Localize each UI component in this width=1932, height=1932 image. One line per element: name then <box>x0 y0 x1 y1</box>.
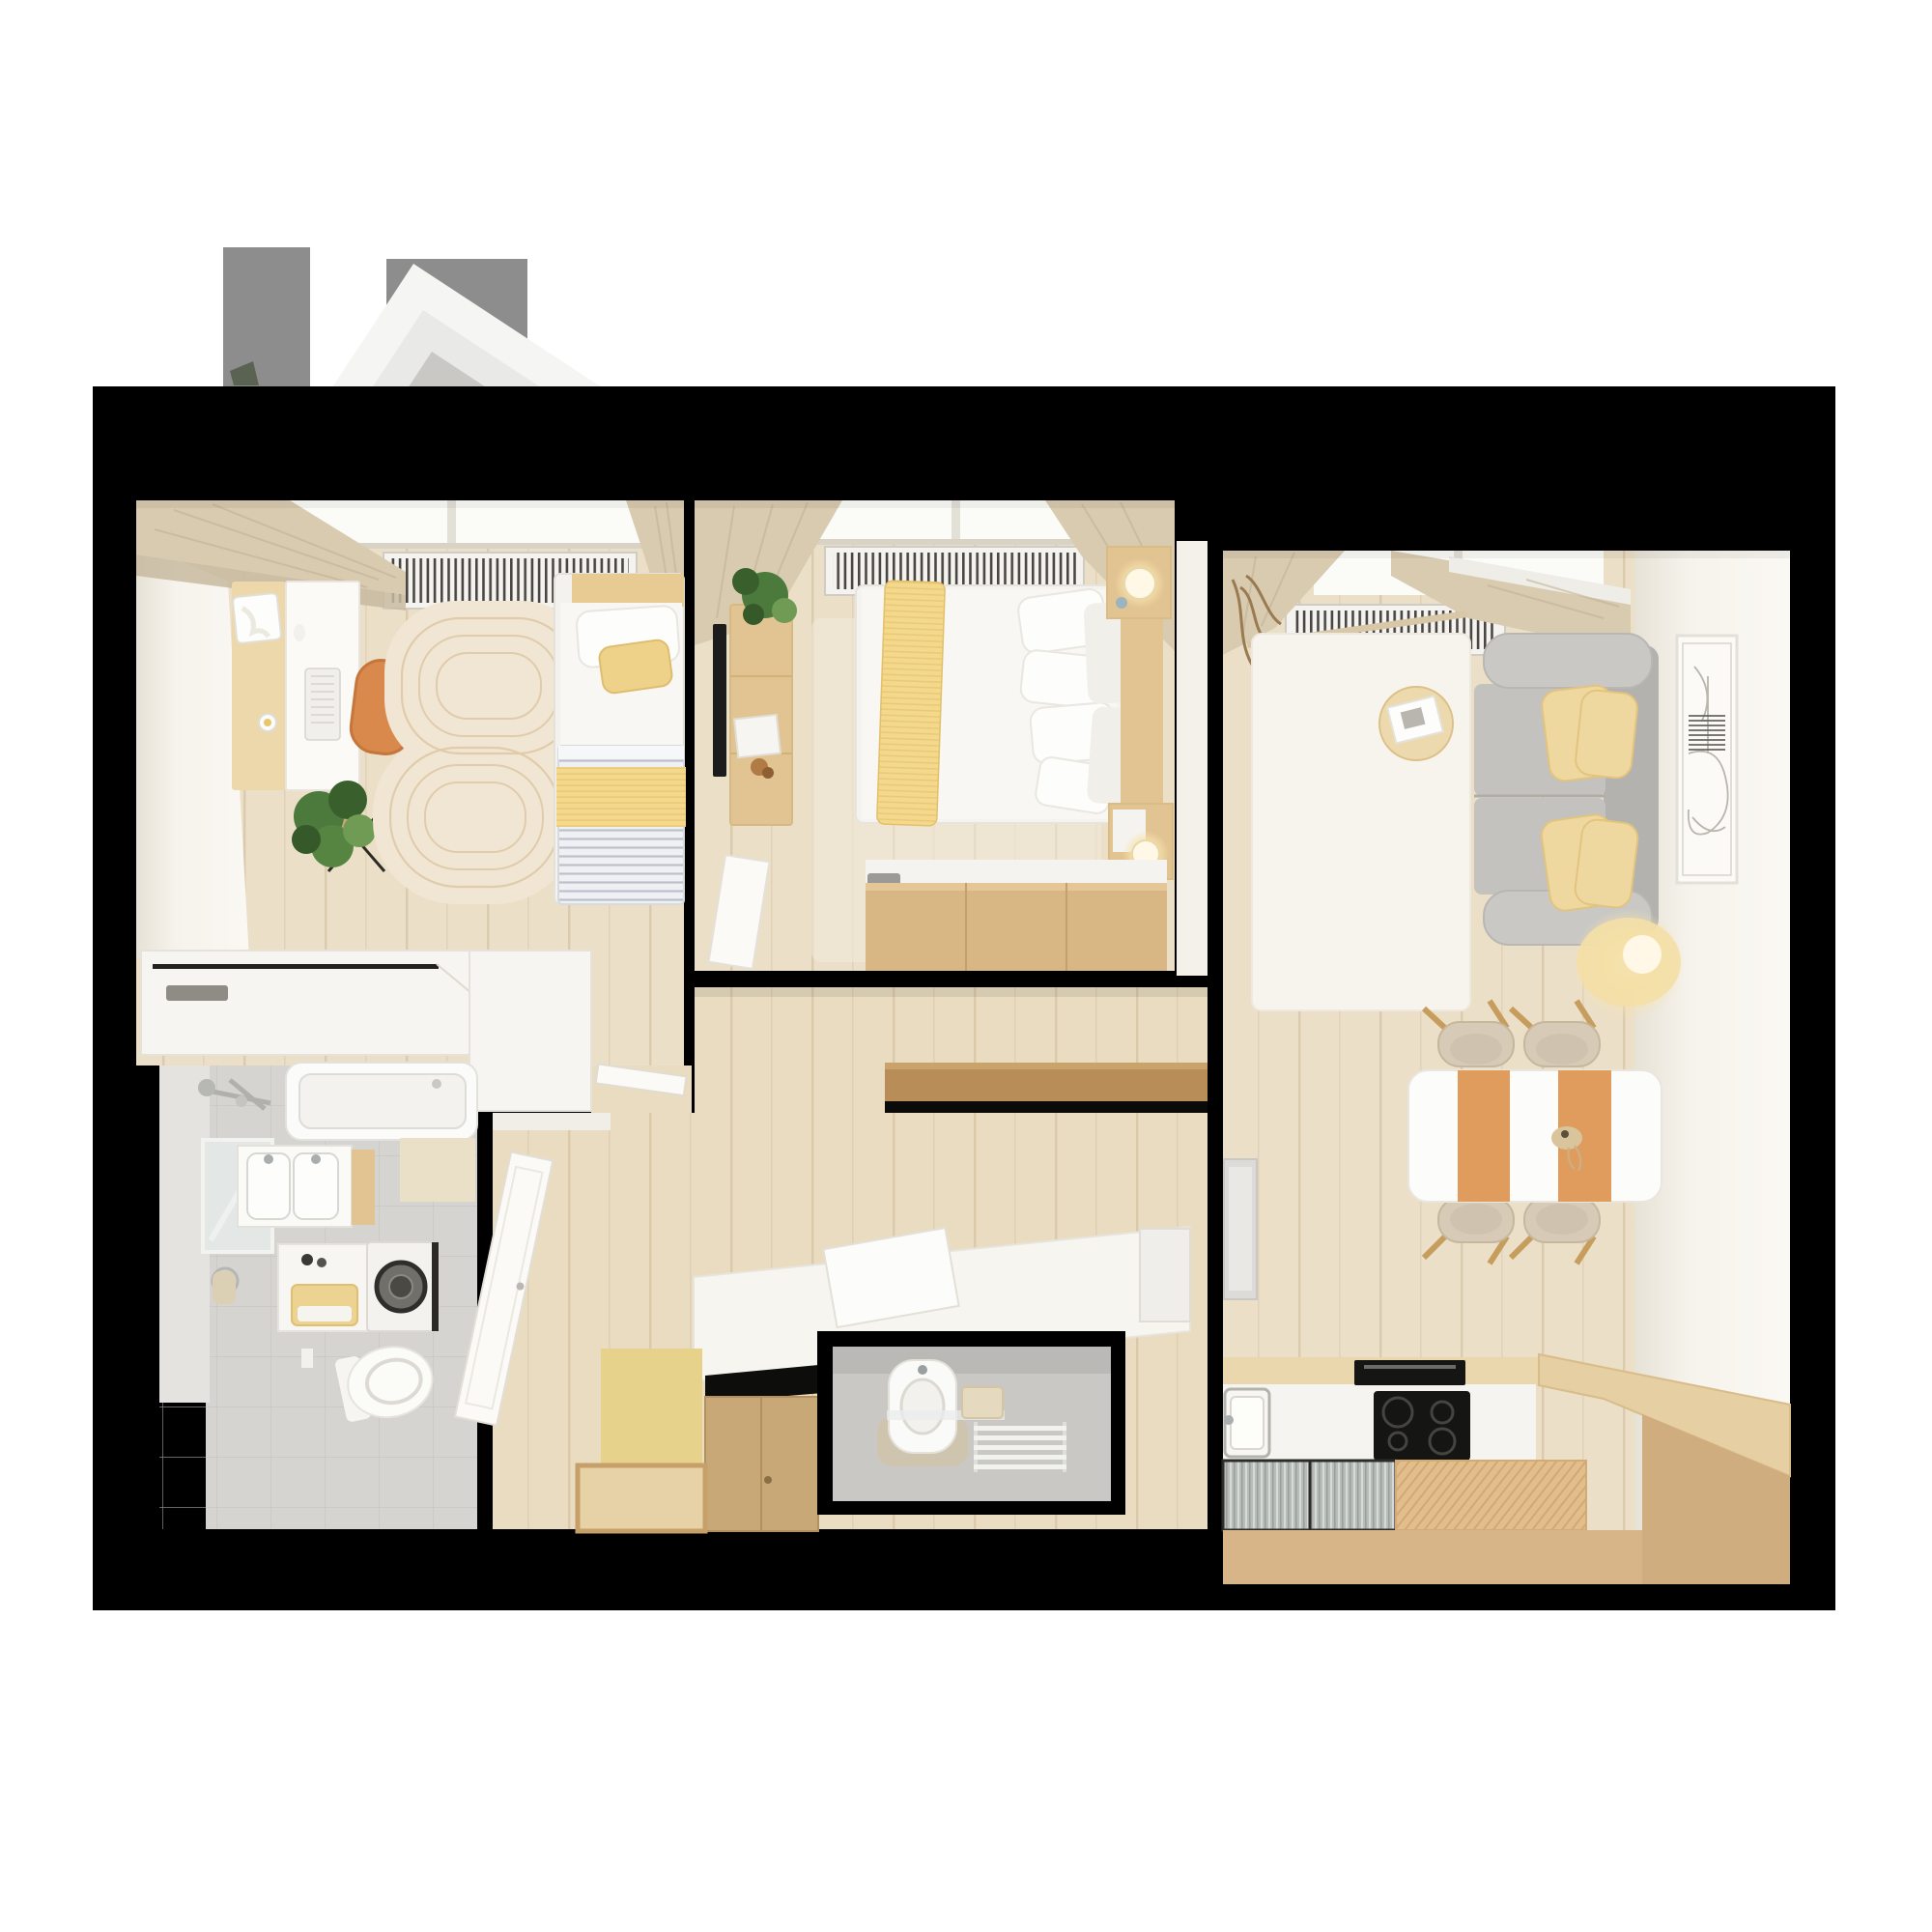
kitchen-tan-front <box>1223 1530 1642 1584</box>
table-centerpiece <box>1551 1126 1582 1150</box>
desk <box>232 582 359 790</box>
chest-white-lid <box>866 860 1167 883</box>
chest-body <box>866 883 1167 971</box>
bedroom1-wall-shadow <box>136 500 684 508</box>
towel-ring <box>213 1268 238 1304</box>
art-hatch-block <box>1689 715 1725 752</box>
console-book <box>734 715 781 757</box>
floor-lamp-bulb <box>1623 935 1662 974</box>
sink-faucet <box>1224 1415 1234 1425</box>
tub-side-ledge <box>400 1138 475 1202</box>
wc-toilet <box>889 1360 956 1453</box>
bedroom2-window-sill <box>811 539 1101 545</box>
sofa-cushion-4 <box>1574 818 1639 909</box>
bathroom-shelf <box>278 1244 367 1331</box>
coffee-table <box>1379 687 1453 760</box>
bed-blanket-yellow <box>556 767 686 827</box>
table-lamp-top <box>1124 568 1155 599</box>
floorplan-stage <box>0 0 1932 1932</box>
hall-door-frame <box>493 1113 611 1130</box>
bed2-yellow-throw <box>877 581 946 826</box>
wc-flush-button <box>918 1365 927 1375</box>
wc-towel <box>962 1387 1003 1418</box>
nightstand-top <box>1107 547 1171 618</box>
kitchen-sink <box>1224 1389 1269 1457</box>
cabinet-handle <box>166 985 228 1001</box>
bed-pillow-yellow <box>598 639 673 695</box>
mouse <box>294 624 305 641</box>
living-wall-shadow <box>1223 551 1790 558</box>
bedroom2-living-wall-face <box>1177 541 1207 976</box>
cosmetic-bottle-2 <box>317 1258 327 1267</box>
fridge <box>1224 1159 1257 1299</box>
hand-towel <box>213 1271 236 1304</box>
white-rug <box>1252 634 1470 1010</box>
oven <box>1354 1360 1465 1385</box>
niche-handle <box>764 1476 772 1484</box>
wc-back-wall <box>833 1347 1111 1374</box>
cosmetic-bottle-1 <box>301 1254 313 1265</box>
floorplan-svg <box>0 0 1932 1932</box>
sofa-cushion-2 <box>1575 689 1639 780</box>
keyboard <box>305 668 340 740</box>
folded-towel-white <box>298 1306 352 1321</box>
niche-yellow-wall <box>601 1349 702 1465</box>
wc-group <box>817 1331 1125 1515</box>
roof-gray-slab <box>223 247 310 388</box>
floor-lamp <box>1573 908 1685 1020</box>
single-bed <box>554 574 686 904</box>
dining-table <box>1408 1070 1662 1202</box>
corridor-console <box>885 1063 1207 1113</box>
sofa-armrest-top <box>1484 634 1652 688</box>
washing-machine <box>367 1242 439 1331</box>
cabinet-extension <box>469 951 591 1111</box>
vanity-faucet-1 <box>264 1154 273 1164</box>
sofa <box>1474 634 1659 945</box>
slatted-counter <box>1396 1461 1586 1530</box>
keyboard-keys <box>311 676 334 723</box>
vanity-wood-side <box>352 1150 375 1225</box>
wall-art <box>1677 636 1737 883</box>
bedroom2-wall-shadow <box>695 500 1175 508</box>
induction-hob <box>1374 1391 1470 1461</box>
light-switch <box>301 1349 313 1368</box>
corridor-wall-shadow <box>695 987 1207 997</box>
bed-duvet-fold <box>558 746 684 759</box>
double-bed <box>856 581 1131 826</box>
tv <box>713 624 726 777</box>
sideboard-step <box>1140 1229 1190 1321</box>
tub-drain <box>432 1079 441 1089</box>
laptop <box>233 593 282 644</box>
oven-handle <box>1364 1365 1456 1369</box>
kitchen <box>1223 1354 1790 1584</box>
media-console <box>730 605 792 825</box>
bed-headboard <box>572 574 684 607</box>
storage-chest <box>866 860 1167 971</box>
wc-towel-radiator <box>974 1422 1066 1472</box>
double-vanity <box>238 1146 375 1227</box>
niche-wood-floor <box>578 1465 705 1531</box>
nightstand-cup <box>1116 597 1127 609</box>
bathtub <box>286 1063 477 1140</box>
mug-coffee <box>264 719 271 726</box>
table-runner-1 <box>1458 1070 1510 1202</box>
vanity-faucet-2 <box>311 1154 321 1164</box>
cabinet-groove <box>153 964 439 969</box>
